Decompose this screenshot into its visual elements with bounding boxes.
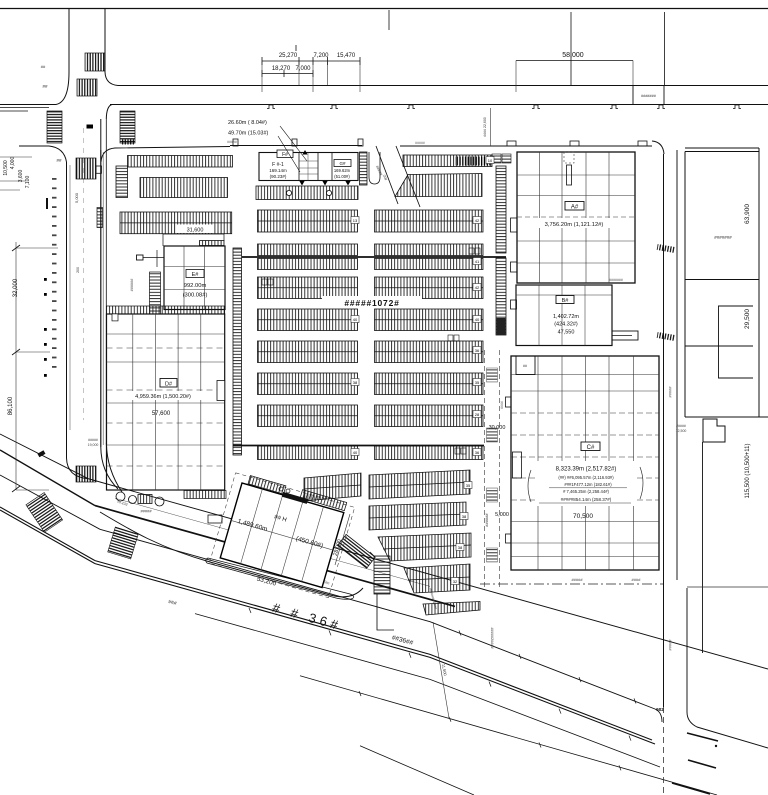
svg-text:#####: #####	[415, 141, 425, 145]
svg-text:(424.32#): (424.32#)	[554, 322, 578, 328]
svg-text:B#: B#	[562, 298, 570, 304]
svg-text:8,323.39m (2,517.82#): 8,323.39m (2,517.82#)	[556, 467, 617, 473]
svg-text:13: 13	[353, 218, 358, 223]
svg-text:##: ##	[42, 84, 48, 89]
svg-text:#####1072#: #####1072#	[344, 298, 399, 308]
svg-text:######: ######	[130, 278, 134, 292]
svg-text:# 7,465.25m (2,258.44#): # 7,465.25m (2,258.44#)	[563, 489, 609, 494]
svg-text:29,500: 29,500	[744, 309, 751, 329]
svg-text:40: 40	[475, 317, 480, 322]
svg-text:38: 38	[458, 545, 463, 550]
svg-text:42: 42	[475, 218, 480, 223]
svg-text:58,000: 58,000	[562, 52, 584, 59]
svg-text:7,100: 7,100	[25, 176, 31, 189]
svg-text:A#: A#	[571, 205, 579, 211]
svg-text:18,270: 18,270	[272, 66, 291, 72]
svg-text:41: 41	[475, 259, 480, 264]
svg-text:#### 22,600: #### 22,600	[483, 117, 487, 137]
svg-text:38: 38	[353, 380, 358, 385]
svg-text:C#: C#	[587, 445, 595, 451]
svg-text:502: 502	[656, 707, 664, 712]
svg-text:#####: #####	[571, 577, 583, 582]
svg-text:3,600: 3,600	[18, 170, 24, 183]
svg-text:15,470: 15,470	[337, 53, 356, 59]
svg-text:#####: #####	[676, 424, 686, 428]
svg-text:1,402.72m: 1,402.72m	[553, 314, 579, 320]
svg-text:40: 40	[353, 450, 358, 455]
svg-text:32,000: 32,000	[13, 278, 19, 297]
svg-text:#######: #######	[641, 94, 657, 98]
svg-text:12,500: 12,500	[676, 429, 687, 433]
svg-text:40: 40	[353, 317, 358, 322]
svg-text:######: ######	[484, 513, 489, 527]
svg-text:169.62m: 169.62m	[334, 168, 351, 173]
svg-text:4,000: 4,000	[10, 157, 16, 170]
svg-text:#####: #####	[88, 438, 98, 442]
svg-text:63,900: 63,900	[744, 204, 751, 224]
svg-text:36: 36	[475, 450, 480, 455]
svg-text:####: ####	[500, 401, 504, 409]
svg-text:31,600: 31,600	[187, 228, 204, 234]
svg-text:5,000: 5,000	[74, 192, 79, 203]
svg-text:115,500 (10,500+11): 115,500 (10,500+11)	[745, 444, 751, 499]
svg-text:10: 10	[488, 158, 493, 163]
svg-text:7,200: 7,200	[313, 53, 329, 59]
svg-text:5,000: 5,000	[495, 512, 509, 518]
svg-text:47,550: 47,550	[558, 330, 575, 336]
svg-text:F#: F#	[282, 152, 288, 158]
svg-text:4,959.36m (1,500.20#): 4,959.36m (1,500.20#)	[135, 394, 191, 400]
svg-text:#######: #######	[714, 235, 732, 240]
svg-text:10,500: 10,500	[3, 160, 9, 176]
svg-text:#####: #####	[140, 509, 152, 514]
svg-text:#####: #####	[227, 140, 237, 144]
svg-text:26.60m ( 8.04#): 26.60m ( 8.04#)	[228, 120, 267, 126]
svg-text:D#: D#	[165, 382, 173, 388]
svg-text:49.70m (15.03#): 49.70m (15.03#)	[228, 131, 269, 137]
svg-text:70,500: 70,500	[573, 513, 593, 520]
svg-text:#####854.14m (258.37#): #####854.14m (258.37#)	[561, 497, 612, 502]
svg-text:##: ##	[41, 64, 46, 69]
svg-text:38: 38	[462, 514, 467, 519]
svg-text:19,000: 19,000	[88, 443, 99, 447]
svg-text:169.14m: 169.14m	[269, 168, 287, 173]
svg-text:##: ##	[56, 158, 62, 163]
svg-text:57,600: 57,600	[152, 411, 171, 417]
svg-text:####: ####	[632, 577, 642, 582]
svg-text:35: 35	[466, 483, 471, 488]
svg-text:(300.08#): (300.08#)	[183, 293, 208, 299]
svg-text:7,000: 7,000	[295, 66, 311, 72]
svg-text:200: 200	[76, 267, 80, 273]
svg-text:##: ##	[523, 364, 527, 368]
svg-text:86,100: 86,100	[8, 396, 14, 415]
svg-text:3,756.20m (1,121.12#): 3,756.20m (1,121.12#)	[545, 222, 604, 228]
svg-text:25,270: 25,270	[279, 53, 298, 59]
svg-text:E#: E#	[192, 272, 200, 278]
svg-text:(51.00#): (51.00#)	[334, 174, 350, 179]
svg-text:(##) ##6,095.57m (2,116.93#): (##) ##6,095.57m (2,116.93#)	[558, 475, 614, 480]
svg-text:#####: #####	[668, 386, 673, 398]
svg-text:992.00m: 992.00m	[184, 283, 207, 289]
svg-text:###1F477.12m (182.61#): ###1F477.12m (182.61#)	[564, 482, 612, 487]
svg-text:42: 42	[475, 285, 480, 290]
svg-text:28: 28	[475, 412, 480, 417]
svg-text:(90.23#): (90.23#)	[270, 174, 287, 179]
svg-text:36: 36	[475, 348, 480, 353]
svg-text:#######: #######	[609, 278, 623, 282]
svg-text:G#: G#	[339, 161, 346, 166]
svg-text:#####2####: #####2####	[490, 627, 494, 649]
svg-text:#####: #####	[668, 639, 673, 651]
svg-text:32: 32	[453, 579, 458, 584]
svg-text:35: 35	[475, 380, 480, 385]
